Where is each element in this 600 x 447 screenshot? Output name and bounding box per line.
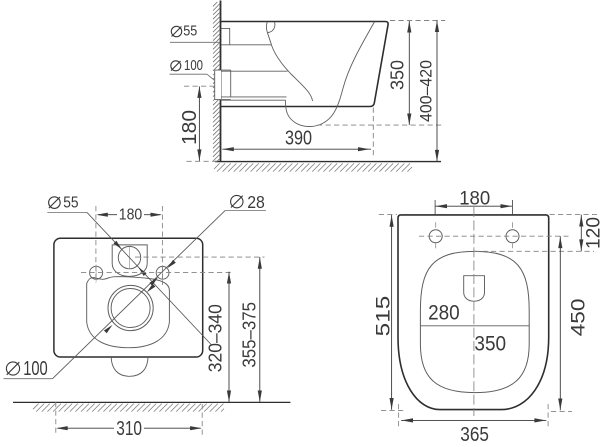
svg-text:320–340: 320–340	[205, 304, 226, 372]
svg-text:450: 450	[569, 299, 590, 337]
svg-text:310: 310	[116, 418, 142, 440]
svg-text:280: 280	[428, 302, 460, 325]
svg-text:365: 365	[460, 424, 489, 442]
svg-text:28: 28	[247, 192, 265, 212]
svg-text:400–420: 400–420	[417, 60, 436, 122]
svg-text:55: 55	[63, 195, 78, 212]
svg-text:350: 350	[388, 60, 408, 90]
svg-text:390: 390	[285, 128, 312, 150]
svg-text:55: 55	[183, 22, 197, 39]
svg-text:180: 180	[459, 189, 490, 210]
svg-text:100: 100	[184, 57, 203, 74]
svg-text:350: 350	[474, 333, 506, 356]
svg-text:180: 180	[119, 207, 143, 224]
svg-text:100: 100	[23, 358, 48, 380]
svg-text:515: 515	[374, 296, 395, 337]
svg-text:355–375: 355–375	[239, 302, 260, 368]
svg-text:180: 180	[179, 110, 201, 145]
svg-text:120: 120	[584, 217, 600, 249]
